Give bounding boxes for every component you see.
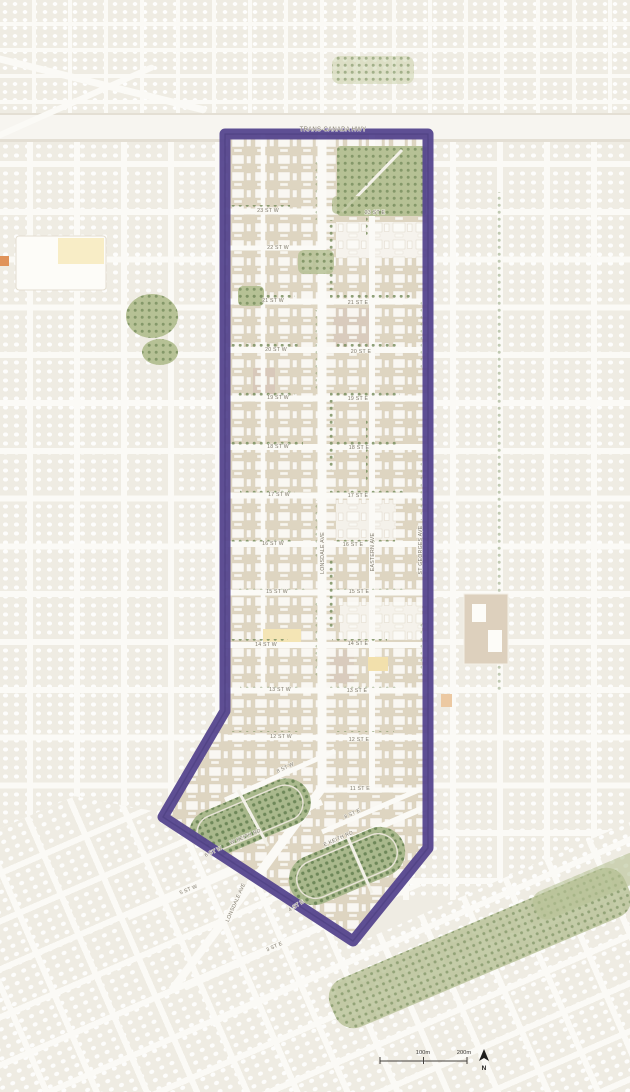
scale-100m-label: 100m [416,1050,431,1056]
street-label: 13 ST E [347,688,368,694]
scale-200m-label: 200m [457,1050,472,1056]
street-label: 17 ST E [348,493,369,499]
north-arrow-icon [479,1049,489,1061]
street-label: 19 ST W [267,395,289,401]
street-label: 23 ST E [365,210,386,216]
street-label: 16 ST E [343,542,364,548]
street-label: 20 ST W [265,347,287,353]
street-label: 20 ST E [351,349,372,355]
street-label: 21 ST W [262,298,284,304]
scale-bar [380,1057,467,1064]
street-label: 17 ST W [268,492,290,498]
street-label: TRANS-CANADA HWY [300,127,367,133]
map-overlay: TRANS-CANADA HWY23 ST W23 ST E22 ST W21 … [0,0,630,1092]
street-label: 15 ST E [349,589,370,595]
street-label: 12 ST W [270,734,292,740]
street-label: 12 ST E [349,737,370,743]
street-label: LONSDALE AVE [225,882,248,923]
street-label: 14 ST E [348,641,369,647]
north-label: N [482,1065,487,1072]
street-label: 13 ST W [269,687,291,693]
street-label: 11 ST E [350,786,370,792]
map: TRANS-CANADA HWY23 ST W23 ST E22 ST W21 … [0,0,630,1092]
street-label: ST GEORGES AVE [418,525,424,574]
street-label: 15 ST W [266,589,288,595]
street-label: 3 ST E [265,941,283,954]
street-label: 14 ST W [255,642,277,648]
street-label: 16 ST W [262,541,284,547]
street-label: 18 ST E [349,445,370,451]
street-label: LONSDALE AVE [320,532,326,574]
street-label: 18 ST W [267,444,289,450]
street-label: 23 ST W [257,208,279,214]
street-label: 22 ST W [267,245,289,251]
street-label: EASTERN AVE [370,533,376,572]
street-label: 5 ST W [179,884,199,897]
street-label: 21 ST E [348,300,369,306]
street-label: 19 ST E [348,396,369,402]
